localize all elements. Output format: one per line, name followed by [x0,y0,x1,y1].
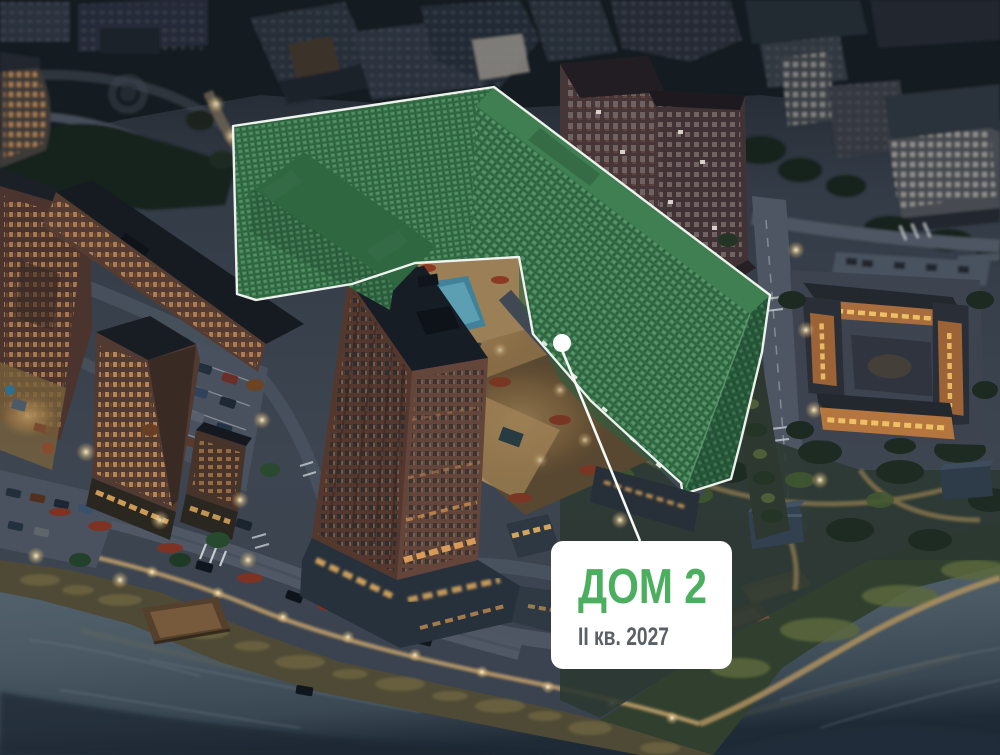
svg-text:II кв. 2027: II кв. 2027 [578,623,669,651]
svg-text:ДОМ 2: ДОМ 2 [578,560,707,614]
